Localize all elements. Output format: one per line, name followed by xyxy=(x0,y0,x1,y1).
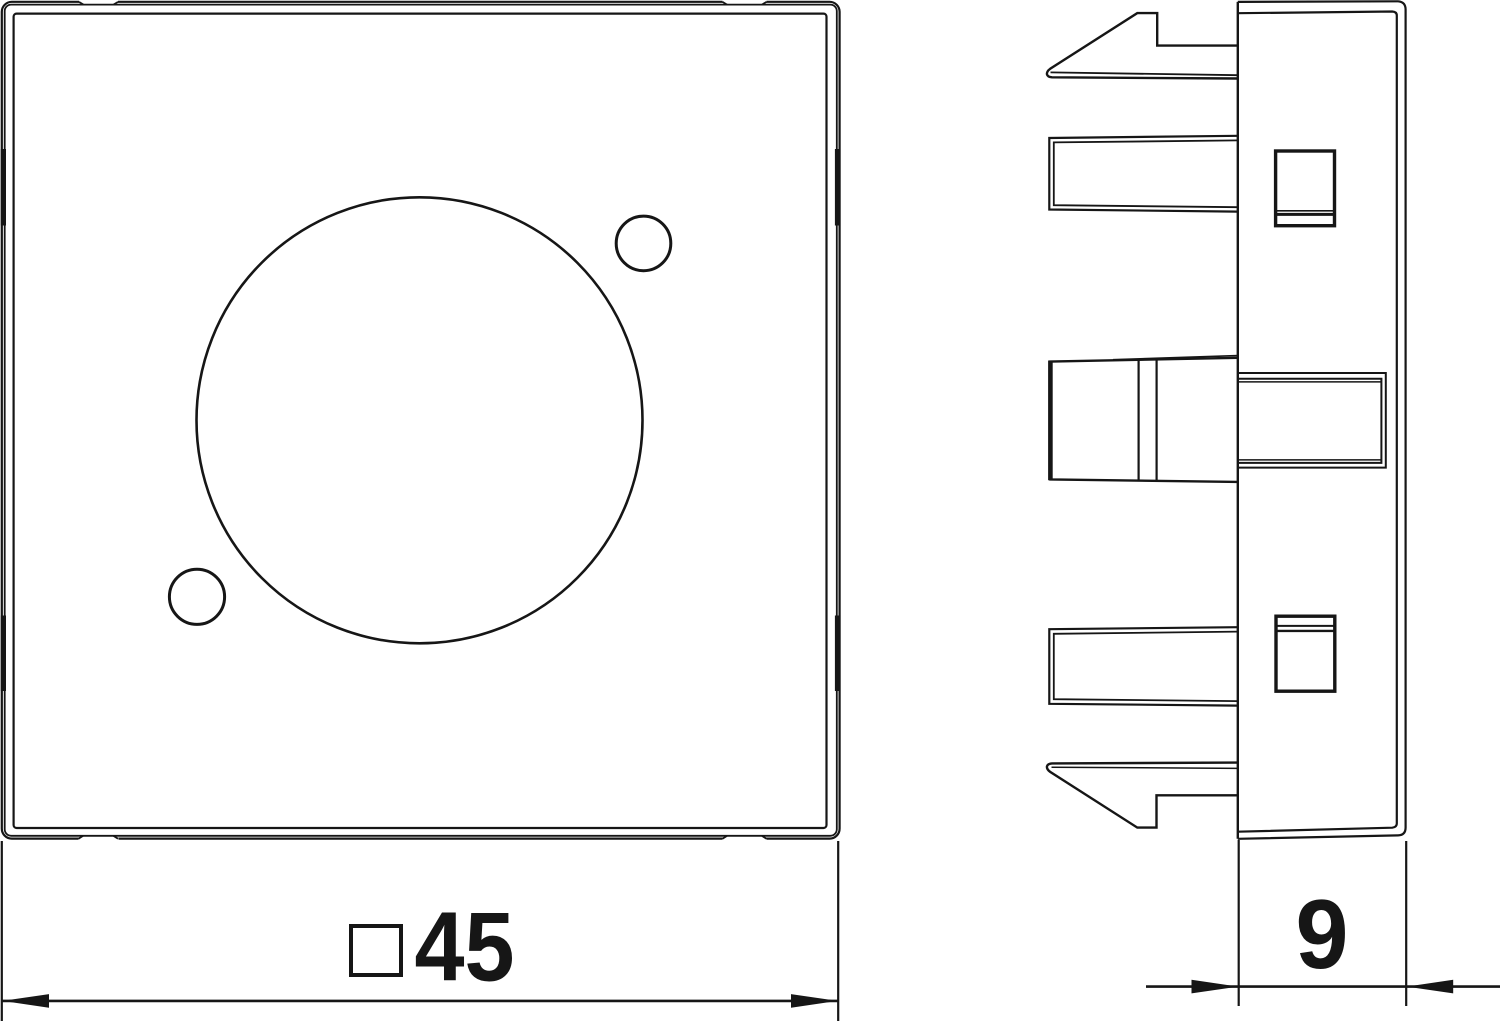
svg-text:45: 45 xyxy=(415,892,515,1002)
svg-text:9: 9 xyxy=(1296,879,1349,989)
